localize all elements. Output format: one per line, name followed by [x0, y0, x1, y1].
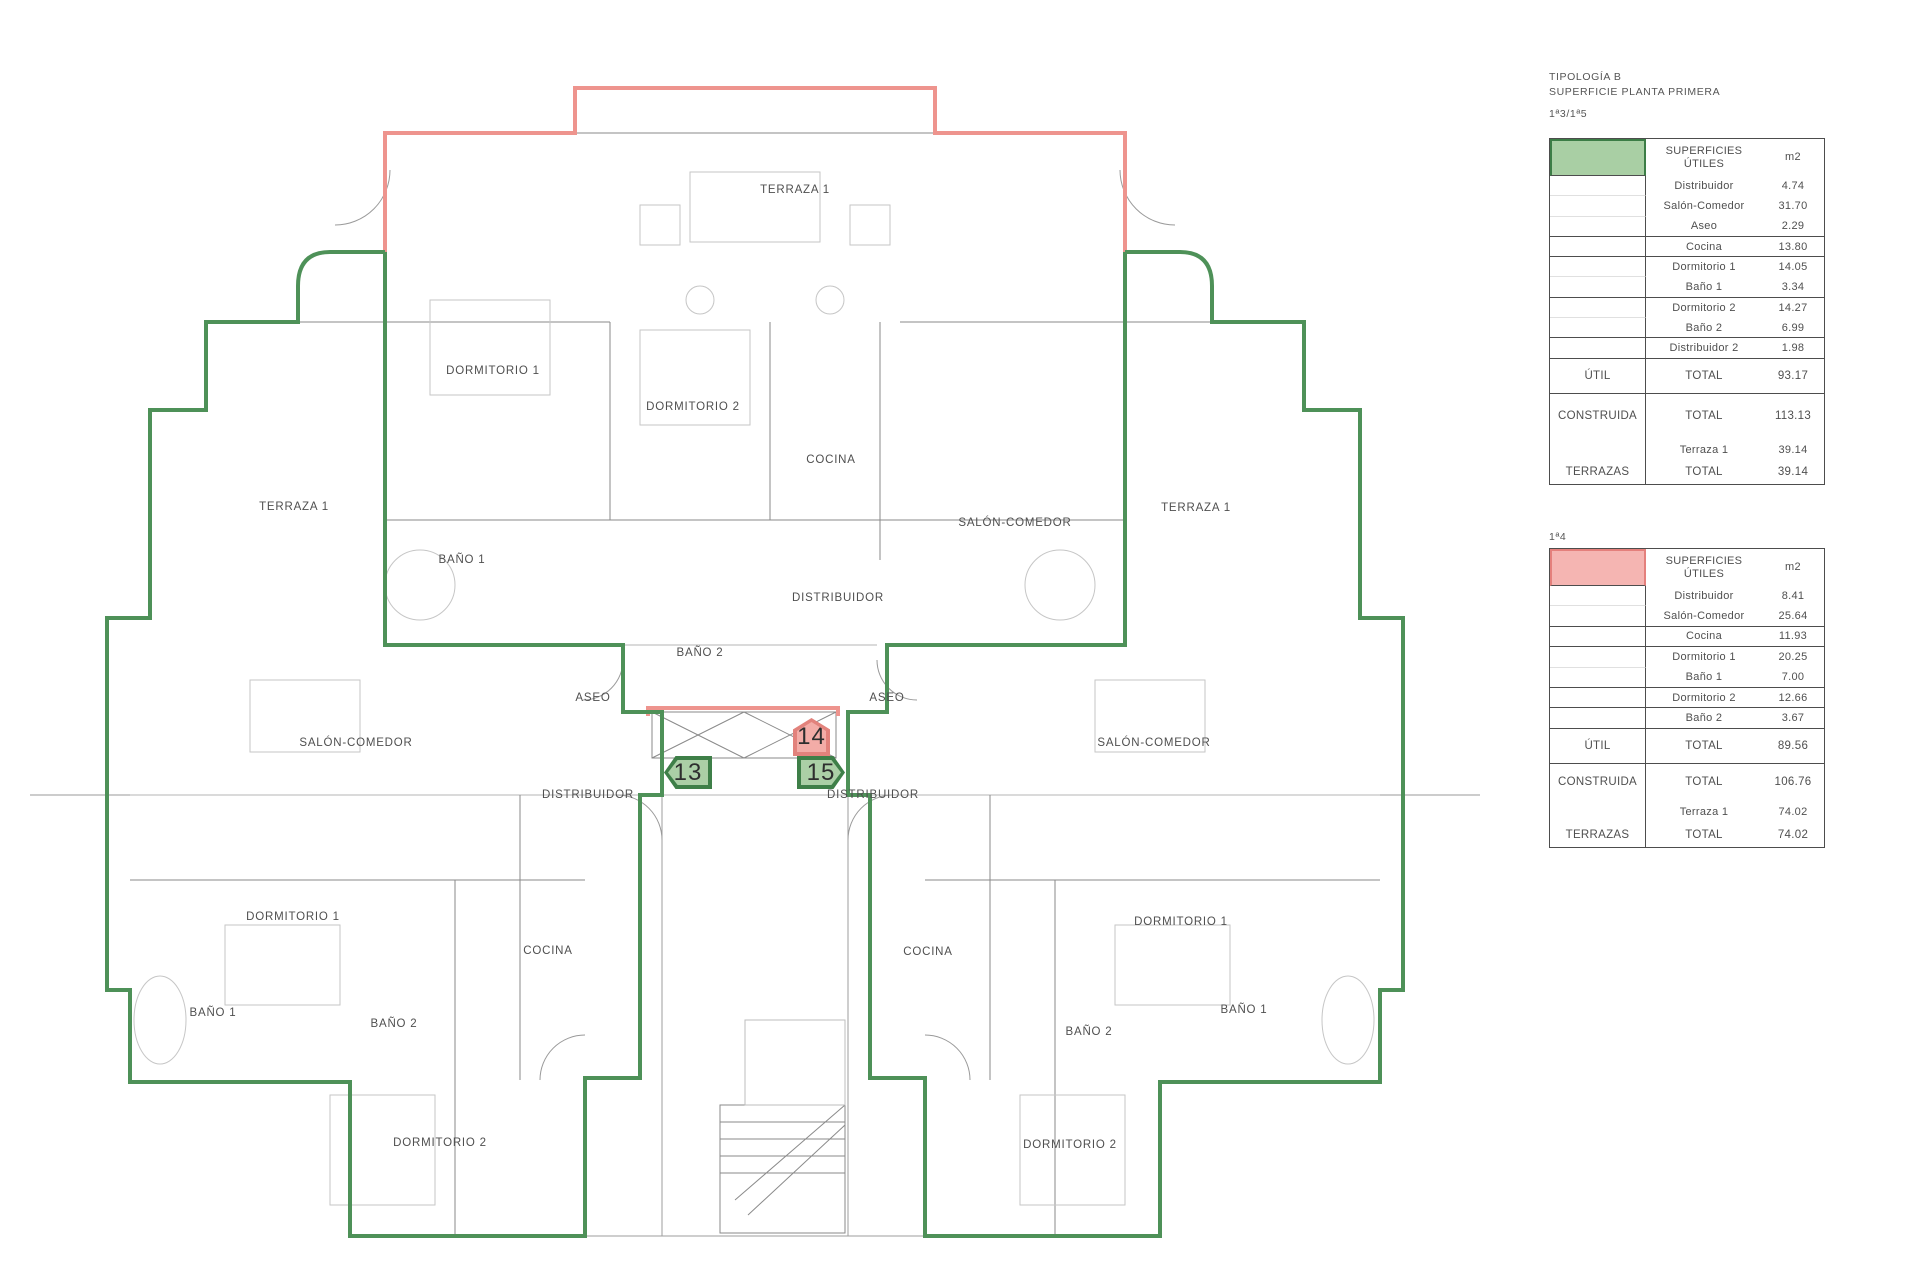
table2-value: 7.00 — [1762, 668, 1824, 688]
table1-terrazas-label: TERRAZAS — [1550, 461, 1646, 484]
floor-plan-page: TERRAZA 1 DORMITORIO 1 DORMITORIO 2 COCI… — [0, 0, 1920, 1274]
table2-value: 8.41 — [1762, 586, 1824, 606]
unit-badge-15: 15 — [797, 756, 845, 789]
table1-room: Distribuidor — [1646, 176, 1762, 196]
table2-room: Dormitorio 2 — [1646, 688, 1762, 708]
table2-room: Baño 2 — [1646, 708, 1762, 728]
unit-14-outline — [385, 88, 1125, 716]
table2-terrazas-total: TOTAL — [1646, 823, 1762, 847]
table1-terraza-value: 39.14 — [1762, 439, 1824, 461]
unit-badge-14: 14 — [793, 718, 830, 756]
room-label-distribuidor-r: DISTRIBUIDOR — [827, 789, 919, 801]
table2-room: Distribuidor — [1646, 586, 1762, 606]
table2-construida-label: CONSTRUIDA — [1550, 764, 1646, 801]
table1-value: 13.80 — [1762, 237, 1824, 257]
table2-value: 20.25 — [1762, 647, 1824, 667]
stairs — [720, 1020, 845, 1233]
room-label-dormitorio1-up: DORMITORIO 1 — [446, 365, 540, 377]
room-label-aseo-right: ASEO — [869, 692, 904, 704]
room-label-cocina-br: COCINA — [903, 946, 953, 958]
room-label-dormitorio2-bl: DORMITORIO 2 — [393, 1137, 487, 1149]
table2-terrazas-value: 74.02 — [1762, 823, 1824, 847]
table1-header-superficies: SUPERFICIES ÚTILES — [1646, 139, 1762, 176]
table1-room: Distribuidor 2 — [1646, 338, 1762, 358]
table1-room: Baño 1 — [1646, 277, 1762, 297]
table1-util-value: 93.17 — [1762, 359, 1824, 394]
table1-header-m2: m2 — [1762, 139, 1824, 176]
series-label-13-15: 1ª3/1ª5 — [1549, 108, 1587, 120]
table1-terrazas-total: TOTAL — [1646, 461, 1762, 484]
table1-terrazas-value: 39.14 — [1762, 461, 1824, 484]
table2-construida-value: 106.76 — [1762, 764, 1824, 801]
series-label-14: 1ª4 — [1549, 531, 1566, 543]
table2-value: 12.66 — [1762, 688, 1824, 708]
table1-value: 31.70 — [1762, 196, 1824, 216]
table2-construida-total: TOTAL — [1646, 764, 1762, 801]
table1-construida-total: TOTAL — [1646, 394, 1762, 439]
table1-room: Salón-Comedor — [1646, 196, 1762, 216]
table2-header-m2: m2 — [1762, 549, 1824, 586]
areas-table-13-15: SUPERFICIES ÚTILES m2 Distribuidor4.74 S… — [1549, 138, 1825, 485]
room-label-salon-left: SALÓN-COMEDOR — [299, 737, 412, 749]
table2-swatch-pink — [1550, 549, 1646, 586]
table2-terrazas-label: TERRAZAS — [1550, 823, 1646, 847]
room-label-dormitorio2-up: DORMITORIO 2 — [646, 401, 740, 413]
table1-room: Dormitorio 2 — [1646, 298, 1762, 318]
table2-util-total: TOTAL — [1646, 729, 1762, 764]
room-label-terraza1-left: TERRAZA 1 — [259, 501, 329, 513]
table2-value: 11.93 — [1762, 627, 1824, 647]
table1-construida-label: CONSTRUIDA — [1550, 394, 1646, 439]
table2-util-label: ÚTIL — [1550, 729, 1646, 764]
table1-value: 6.99 — [1762, 318, 1824, 338]
room-label-terraza1-top: TERRAZA 1 — [760, 184, 830, 196]
areas-table-14: SUPERFICIES ÚTILES m2 Distribuidor8.41 S… — [1549, 548, 1825, 848]
table1-room: Baño 2 — [1646, 318, 1762, 338]
room-label-bano1-up: BAÑO 1 — [439, 554, 486, 566]
unit-badge-13: 13 — [664, 756, 712, 789]
room-label-dormitorio2-br: DORMITORIO 2 — [1023, 1139, 1117, 1151]
room-label-bano1-bl: BAÑO 1 — [190, 1007, 237, 1019]
room-label-dormitorio1-br: DORMITORIO 1 — [1134, 916, 1228, 928]
table2-room: Dormitorio 1 — [1646, 647, 1762, 667]
table1-util-label: ÚTIL — [1550, 359, 1646, 394]
table1-value: 1.98 — [1762, 338, 1824, 358]
table2-header-superficies: SUPERFICIES ÚTILES — [1646, 549, 1762, 586]
room-label-terraza1-right: TERRAZA 1 — [1161, 502, 1231, 514]
table1-util-total: TOTAL — [1646, 359, 1762, 394]
room-label-bano2-bl: BAÑO 2 — [371, 1018, 418, 1030]
table1-value: 14.27 — [1762, 298, 1824, 318]
panel-title-line2: SUPERFICIE PLANTA PRIMERA — [1549, 85, 1720, 100]
table2-room: Salón-Comedor — [1646, 606, 1762, 626]
table1-room: Aseo — [1646, 217, 1762, 237]
table2-value: 3.67 — [1762, 708, 1824, 728]
table1-value: 4.74 — [1762, 176, 1824, 196]
table1-room: Cocina — [1646, 237, 1762, 257]
room-label-aseo-left: ASEO — [575, 692, 610, 704]
table1-swatch-green — [1550, 139, 1646, 176]
room-label-cocina-up: COCINA — [806, 454, 856, 466]
room-label-distribuidor-l: DISTRIBUIDOR — [542, 789, 634, 801]
table2-room: Baño 1 — [1646, 668, 1762, 688]
table1-value: 14.05 — [1762, 257, 1824, 277]
room-label-salon-up: SALÓN-COMEDOR — [958, 517, 1071, 529]
room-label-bano1-br: BAÑO 1 — [1221, 1004, 1268, 1016]
panel-title-line1: TIPOLOGÍA B — [1549, 70, 1720, 85]
table1-terraza-room: Terraza 1 — [1646, 439, 1762, 461]
door-arcs — [335, 170, 1175, 1080]
room-label-salon-right: SALÓN-COMEDOR — [1097, 737, 1210, 749]
room-label-distribuidor-c: DISTRIBUIDOR — [792, 592, 884, 604]
table2-terraza-room: Terraza 1 — [1646, 801, 1762, 823]
room-label-bano2-mid: BAÑO 2 — [677, 647, 724, 659]
table1-room: Dormitorio 1 — [1646, 257, 1762, 277]
table2-room: Cocina — [1646, 627, 1762, 647]
floor-plan-drawing — [0, 0, 1500, 1274]
room-label-bano2-br: BAÑO 2 — [1066, 1026, 1113, 1038]
furniture — [134, 172, 1374, 1205]
table1-value: 3.34 — [1762, 277, 1824, 297]
table2-terraza-value: 74.02 — [1762, 801, 1824, 823]
panel-title: TIPOLOGÍA B SUPERFICIE PLANTA PRIMERA — [1549, 70, 1720, 100]
table2-util-value: 89.56 — [1762, 729, 1824, 764]
table2-value: 25.64 — [1762, 606, 1824, 626]
room-label-cocina-bl: COCINA — [523, 945, 573, 957]
table1-value: 2.29 — [1762, 217, 1824, 237]
table1-construida-value: 113.13 — [1762, 394, 1824, 439]
room-label-dormitorio1-bl: DORMITORIO 1 — [246, 911, 340, 923]
